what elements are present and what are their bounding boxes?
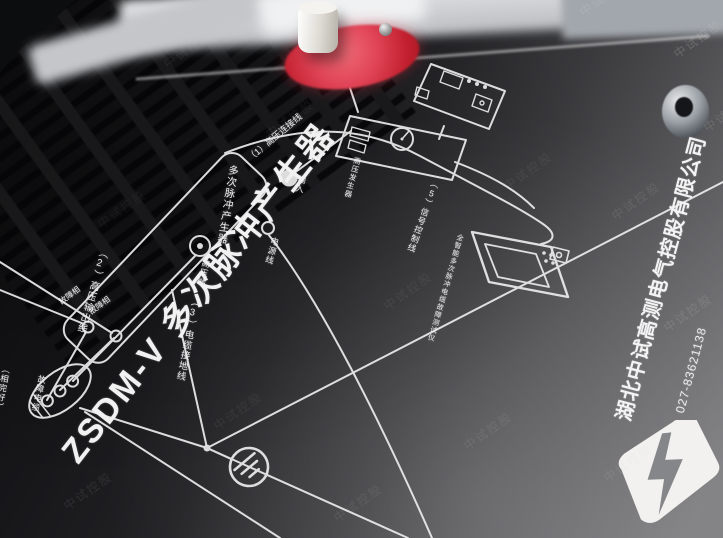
zhongshi-lightning-logo — [607, 420, 723, 535]
hv-control-box — [414, 64, 505, 129]
panel-screw — [379, 23, 392, 36]
earth-ground-icon — [222, 440, 276, 494]
hv-terminal-knob — [298, 5, 338, 53]
metal-case-foot — [662, 85, 709, 138]
cable-fault-tester-box — [472, 232, 569, 297]
instrument-case-photo: ZSDM-V 多次脉冲产生器 （1）高压连接线 （2）高压输出线 （3）电缆接地… — [0, 0, 723, 538]
junction-node — [204, 445, 211, 452]
